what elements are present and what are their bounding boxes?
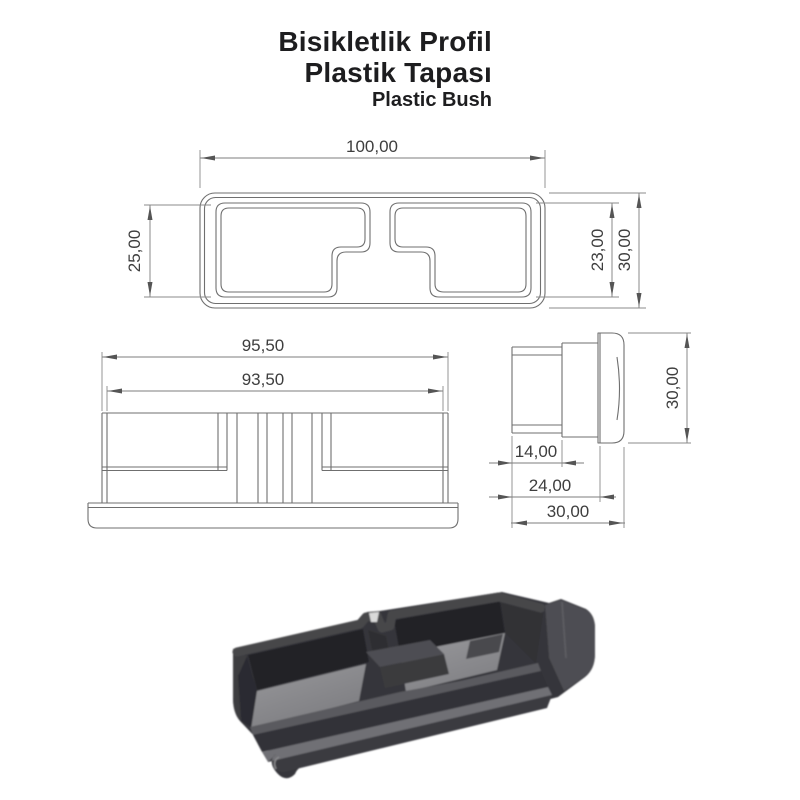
- front-ledge-lines: [102, 467, 448, 471]
- side-flange-arc: [617, 357, 620, 420]
- front-view-outline: [88, 413, 458, 528]
- front-flange-top: [88, 503, 458, 508]
- dim-front-outer-width: 95,50: [242, 336, 285, 355]
- dim-side-height: 30,00: [663, 367, 682, 410]
- front-side-edges: [102, 413, 448, 503]
- front-view-dimensions: 95,50 93,50: [102, 336, 448, 411]
- side-body-walls: [512, 355, 562, 425]
- side-body-outline: [512, 347, 562, 433]
- right-pocket-outer: [390, 203, 531, 297]
- side-view-dimensions: 30,00 14,00 24,00 30,00: [489, 333, 691, 528]
- technical-drawing-canvas: 100,00 25,00 23,00 30,00: [0, 0, 800, 800]
- front-center-walls: [237, 413, 312, 503]
- dim-top-left-height: 25,00: [125, 230, 144, 273]
- front-view: 95,50 93,50: [88, 336, 458, 528]
- part-3d-render: [233, 592, 595, 778]
- top-view-outline: [200, 193, 545, 308]
- dim-top-right-inner-height: 23,00: [588, 229, 607, 272]
- top-view-outer-contour: [200, 193, 545, 308]
- left-pocket-outer: [216, 203, 370, 297]
- left-pocket-inner: [221, 208, 365, 292]
- top-view-dimensions: 100,00 25,00 23,00 30,00: [125, 137, 646, 308]
- right-pocket-inner: [395, 208, 526, 292]
- dim-front-inner-width: 93,50: [242, 370, 285, 389]
- top-view: 100,00 25,00 23,00 30,00: [125, 137, 646, 308]
- side-view-outline: [512, 333, 624, 443]
- dim-top-width: 100,00: [346, 137, 398, 156]
- page: Bisikletlik Profil Plastik Tapası Plasti…: [0, 0, 800, 800]
- dim-side-insert-depth: 14,00: [515, 442, 558, 461]
- dim-side-body-depth: 24,00: [529, 476, 572, 495]
- side-mid-step: [562, 343, 598, 437]
- side-flange-outline: [598, 333, 624, 443]
- front-step-edges: [218, 413, 331, 471]
- dim-top-right-outer-height: 30,00: [615, 229, 634, 272]
- dim-side-total-depth: 30,00: [547, 502, 590, 521]
- front-flange-outline: [88, 503, 458, 528]
- side-view: 30,00 14,00 24,00 30,00: [489, 333, 691, 528]
- top-view-inner-contour: [205, 198, 541, 304]
